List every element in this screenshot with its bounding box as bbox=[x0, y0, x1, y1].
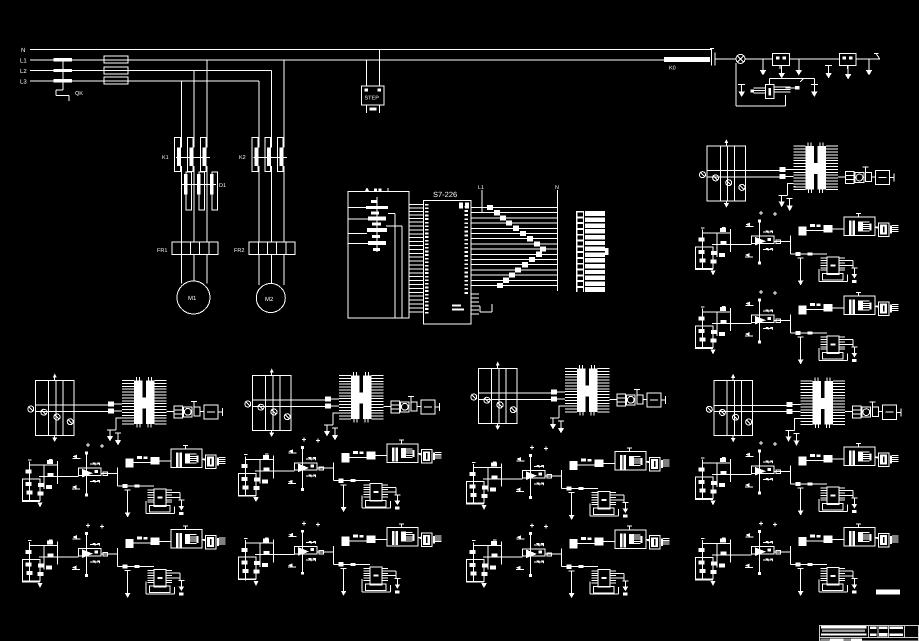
svg-text:D1: D1 bbox=[219, 183, 226, 189]
svg-text:K2: K2 bbox=[239, 155, 246, 161]
svg-text:L3: L3 bbox=[20, 79, 27, 86]
svg-text:L2: L2 bbox=[20, 68, 27, 75]
svg-text:L1: L1 bbox=[478, 185, 484, 191]
svg-text:N: N bbox=[21, 47, 25, 54]
svg-text:FR2: FR2 bbox=[234, 248, 244, 254]
svg-text:M2: M2 bbox=[265, 296, 274, 303]
svg-text:K0: K0 bbox=[669, 66, 676, 72]
svg-text:STEP: STEP bbox=[365, 96, 380, 102]
svg-text:S7-226: S7-226 bbox=[433, 190, 457, 199]
svg-text:K1: K1 bbox=[162, 155, 169, 161]
svg-text:M1: M1 bbox=[188, 295, 197, 302]
svg-text:QK: QK bbox=[75, 91, 83, 97]
svg-text:FR1: FR1 bbox=[157, 248, 167, 254]
svg-text:L1: L1 bbox=[20, 58, 27, 65]
